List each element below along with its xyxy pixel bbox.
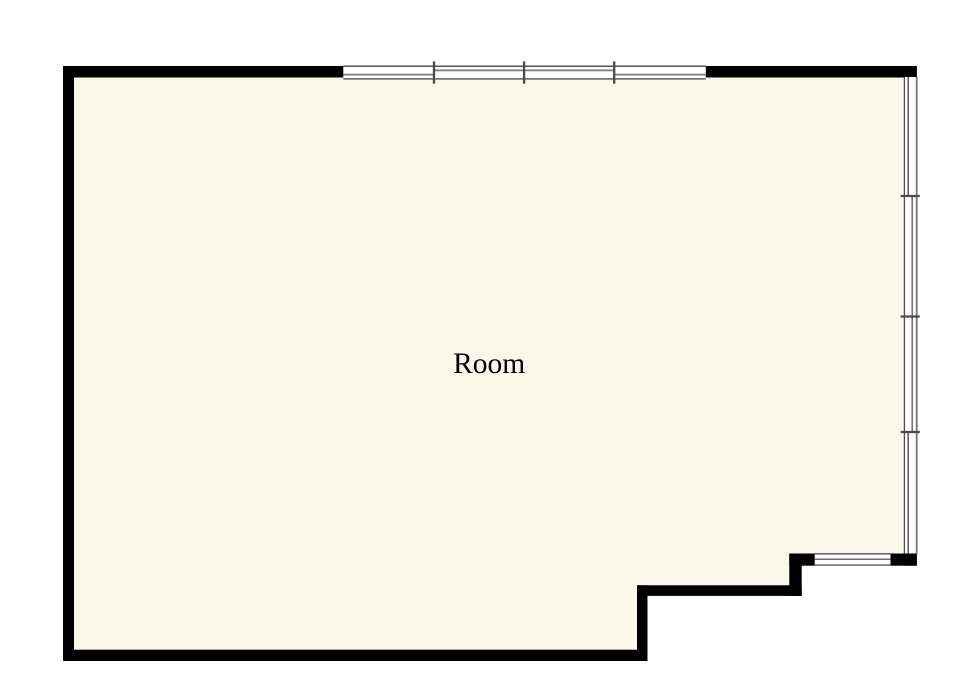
svg-text:Room: Room [453, 348, 525, 380]
